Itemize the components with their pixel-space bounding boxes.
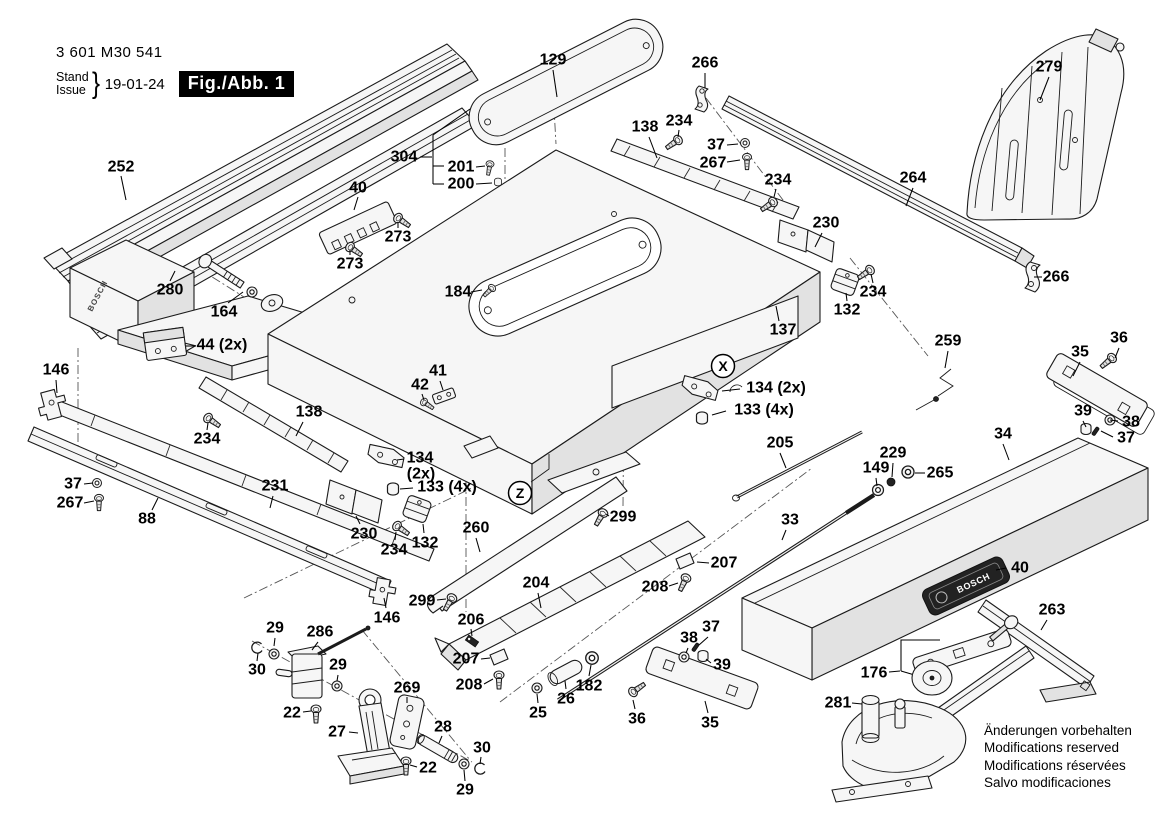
part-label-252: 252 bbox=[108, 159, 135, 176]
part-label-299: 299 bbox=[409, 593, 436, 610]
part-label-234: 234 bbox=[381, 542, 408, 559]
leader-line bbox=[410, 765, 417, 767]
leader-line bbox=[439, 736, 442, 743]
part-label-37: 37 bbox=[707, 137, 725, 154]
screw-267-left bbox=[95, 494, 104, 510]
part-label-34: 34 bbox=[994, 426, 1012, 443]
part-label-35: 35 bbox=[701, 715, 719, 732]
part-label-176: 176 bbox=[861, 665, 888, 682]
screw-22-a bbox=[311, 705, 321, 723]
part-label-149: 149 bbox=[863, 460, 890, 477]
part-label-205: 205 bbox=[767, 435, 794, 452]
part-label-133-4x: 133 (4x) bbox=[417, 479, 477, 496]
part-label-39: 39 bbox=[713, 657, 731, 674]
part-205-rod bbox=[733, 432, 863, 501]
part-label-234: 234 bbox=[666, 113, 693, 130]
part-label-134: 134 bbox=[407, 450, 434, 467]
part-label-22: 22 bbox=[283, 705, 301, 722]
pin-37-right bbox=[1091, 427, 1099, 436]
leader-line bbox=[780, 453, 786, 468]
leader-line bbox=[423, 524, 424, 533]
washer-25 bbox=[532, 683, 542, 693]
part-label-207: 207 bbox=[711, 555, 738, 572]
part-label-234: 234 bbox=[765, 172, 792, 189]
part-label-234: 234 bbox=[194, 431, 221, 448]
leader-line bbox=[782, 530, 786, 540]
leader-line bbox=[871, 274, 873, 283]
part-label-263: 263 bbox=[1039, 602, 1066, 619]
washer-182 bbox=[586, 652, 599, 665]
part-label-37: 37 bbox=[64, 476, 82, 493]
screw-234-d bbox=[202, 412, 222, 431]
part-label-164: 164 bbox=[211, 304, 238, 321]
part-label-267: 267 bbox=[700, 155, 727, 172]
leader-line bbox=[705, 701, 708, 713]
part-label-33: 33 bbox=[781, 512, 799, 529]
part-label-208: 208 bbox=[642, 579, 669, 596]
part-label-29: 29 bbox=[266, 620, 284, 637]
leader-line bbox=[121, 176, 126, 200]
leader-line bbox=[852, 703, 862, 704]
leader-line bbox=[484, 679, 493, 684]
part-label-29: 29 bbox=[456, 782, 474, 799]
part-259-wire bbox=[916, 369, 953, 410]
part-132-clamp-right bbox=[830, 268, 860, 297]
part-label-134-2x: 134 (2x) bbox=[746, 380, 806, 397]
part-label-36: 36 bbox=[628, 711, 646, 728]
nut-133-right bbox=[697, 412, 708, 424]
leader-line bbox=[476, 183, 492, 184]
leader-line bbox=[697, 562, 709, 563]
part-label-230: 230 bbox=[351, 526, 378, 543]
part-table-top bbox=[268, 150, 820, 514]
part-label-234: 234 bbox=[860, 284, 887, 301]
part-label-26: 26 bbox=[557, 691, 575, 708]
screw-267-top bbox=[743, 153, 752, 169]
part-35-plate-bottom bbox=[627, 643, 760, 711]
leader-line bbox=[945, 351, 948, 368]
parts-diagram-page: 3 601 M30 541 Stand Issue } 19-01-24 Fig… bbox=[0, 0, 1166, 824]
screw-201 bbox=[484, 160, 494, 176]
part-label-30: 30 bbox=[473, 740, 491, 757]
part-label-260: 260 bbox=[463, 520, 490, 537]
leader-line bbox=[1003, 444, 1009, 460]
leader-line bbox=[152, 498, 158, 510]
part-label-39: 39 bbox=[1074, 403, 1092, 420]
part-label-28: 28 bbox=[434, 719, 452, 736]
part-label-44-2x: 44 (2x) bbox=[197, 337, 248, 354]
washer-29-b bbox=[332, 681, 342, 691]
part-label-269: 269 bbox=[394, 680, 421, 697]
part-label-138: 138 bbox=[296, 404, 323, 421]
leader-line bbox=[889, 671, 900, 672]
nut-133-left bbox=[388, 483, 399, 495]
part-label-286: 286 bbox=[307, 624, 334, 641]
part-204-support bbox=[435, 521, 705, 670]
screw-234-c bbox=[664, 134, 684, 153]
cclip-30-bottom bbox=[475, 763, 485, 774]
part-label-281: 281 bbox=[825, 695, 852, 712]
view-marker-letter-X: X bbox=[718, 358, 728, 374]
leader-line bbox=[354, 197, 358, 210]
leader-line bbox=[722, 389, 740, 391]
part-label-206: 206 bbox=[458, 612, 485, 629]
leader-line bbox=[699, 637, 708, 645]
part-label-184: 184 bbox=[445, 284, 472, 301]
screw-36-bottom bbox=[627, 680, 647, 699]
leader-line bbox=[84, 501, 94, 503]
part-label-129: 129 bbox=[540, 52, 567, 69]
screw-208-left bbox=[494, 671, 504, 689]
leader-line bbox=[565, 681, 566, 689]
leader-line bbox=[257, 653, 258, 661]
part-label-22: 22 bbox=[419, 760, 437, 777]
leader-line bbox=[727, 144, 738, 145]
part-label-266: 266 bbox=[1043, 269, 1070, 286]
part-label-273: 273 bbox=[337, 256, 364, 273]
leader-line bbox=[892, 463, 893, 477]
leader-line bbox=[633, 700, 635, 709]
part-label-279: 279 bbox=[1036, 59, 1063, 76]
part-label-132: 132 bbox=[834, 302, 861, 319]
part-label-37: 37 bbox=[1117, 430, 1135, 447]
part-label-201: 201 bbox=[448, 159, 475, 176]
washer-265 bbox=[902, 466, 914, 478]
part-label-265: 265 bbox=[927, 465, 954, 482]
part-132-clamp-left bbox=[402, 495, 432, 524]
washer-29-c bbox=[459, 759, 469, 769]
leader-line bbox=[464, 770, 465, 781]
leader-line bbox=[303, 711, 311, 712]
part-label-37: 37 bbox=[702, 619, 720, 636]
part-label-231: 231 bbox=[262, 478, 289, 495]
part-label-40: 40 bbox=[1011, 560, 1029, 577]
part-label-25: 25 bbox=[529, 705, 547, 722]
part-207-nut-right bbox=[676, 553, 694, 569]
screw-273-a bbox=[392, 212, 412, 231]
part-label-30: 30 bbox=[248, 662, 266, 679]
part-label-304: 304 bbox=[391, 149, 418, 166]
part-label-42: 42 bbox=[411, 377, 429, 394]
part-label-41: 41 bbox=[429, 363, 447, 380]
exploded-view-drawing: BOSCH bbox=[0, 0, 1166, 824]
washer-29-a bbox=[269, 649, 279, 659]
part-label-36: 36 bbox=[1110, 330, 1128, 347]
part-label-137: 137 bbox=[770, 322, 797, 339]
leader-line bbox=[727, 160, 740, 162]
leader-line bbox=[774, 189, 776, 197]
part-label-40: 40 bbox=[349, 180, 367, 197]
washer-37-top bbox=[741, 139, 750, 148]
nut-200 bbox=[495, 178, 502, 186]
washer-229 bbox=[887, 478, 895, 486]
leader-line bbox=[56, 380, 57, 393]
part-label-29: 29 bbox=[329, 657, 347, 674]
washer-37-left bbox=[93, 479, 102, 488]
part-label-267: 267 bbox=[57, 495, 84, 512]
part-label-38: 38 bbox=[1122, 414, 1140, 431]
part-label-264: 264 bbox=[900, 170, 927, 187]
part-label-266: 266 bbox=[692, 55, 719, 72]
leader-line bbox=[712, 411, 726, 415]
leader-line bbox=[207, 423, 208, 430]
leader-line bbox=[481, 658, 490, 659]
leader-line bbox=[84, 483, 93, 484]
leader-line bbox=[349, 732, 358, 733]
part-label-280: 280 bbox=[157, 282, 184, 299]
leader-line bbox=[1041, 620, 1047, 630]
leader-line bbox=[1101, 431, 1113, 437]
leader-line bbox=[686, 648, 688, 653]
part-label-38: 38 bbox=[680, 630, 698, 647]
part-label-204: 204 bbox=[523, 575, 550, 592]
part-label-132: 132 bbox=[412, 535, 439, 552]
part-label-88: 88 bbox=[138, 511, 156, 528]
part-label-133-4x: 133 (4x) bbox=[734, 402, 794, 419]
part-label-207: 207 bbox=[453, 651, 480, 668]
leader-line bbox=[669, 583, 678, 586]
nut-39-right bbox=[1081, 424, 1091, 435]
leader-line bbox=[337, 675, 338, 681]
part-label-146: 146 bbox=[43, 362, 70, 379]
part-label-208: 208 bbox=[456, 677, 483, 694]
leader-line bbox=[589, 665, 591, 676]
part-label-27: 27 bbox=[328, 724, 346, 741]
part-label-146: 146 bbox=[374, 610, 401, 627]
part-266-clamp-top bbox=[695, 86, 708, 112]
leader-line bbox=[537, 694, 538, 703]
part-label-273: 273 bbox=[385, 229, 412, 246]
view-marker-letter-Z: Z bbox=[516, 485, 525, 501]
leader-line bbox=[400, 488, 413, 489]
part-label-35: 35 bbox=[1071, 344, 1089, 361]
part-label-230: 230 bbox=[813, 215, 840, 232]
part-207-nut-left bbox=[490, 649, 508, 665]
washer-38-bottom bbox=[679, 652, 689, 662]
part-label-200: 200 bbox=[448, 176, 475, 193]
leader-line bbox=[1115, 348, 1119, 358]
leader-line bbox=[476, 166, 485, 167]
leader-line bbox=[476, 538, 480, 552]
part-label-182: 182 bbox=[576, 678, 603, 695]
screw-208-right bbox=[676, 572, 693, 593]
washer-149 bbox=[873, 485, 884, 496]
part-label-299: 299 bbox=[610, 509, 637, 526]
leader-line bbox=[274, 638, 275, 646]
part-label-138: 138 bbox=[632, 119, 659, 136]
screw-36-right bbox=[1098, 352, 1118, 371]
part-label-259: 259 bbox=[935, 333, 962, 350]
